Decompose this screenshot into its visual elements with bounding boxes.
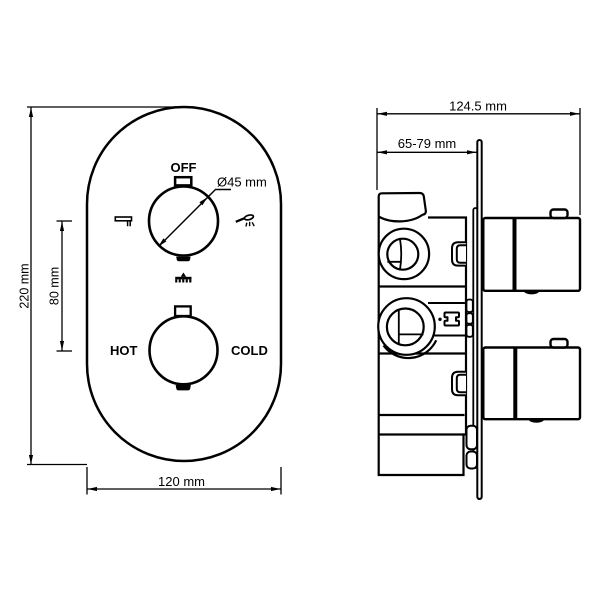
svg-text:Ø45 mm: Ø45 mm [217, 175, 267, 190]
svg-text:124.5 mm: 124.5 mm [449, 99, 507, 114]
svg-text:OFF: OFF [171, 160, 197, 175]
svg-text:120 mm: 120 mm [158, 474, 205, 489]
svg-text:HOT: HOT [110, 343, 138, 358]
svg-text:COLD: COLD [231, 343, 268, 358]
svg-text:220 mm: 220 mm [18, 263, 32, 308]
svg-text:80 mm: 80 mm [48, 267, 62, 305]
svg-text:65-79 mm: 65-79 mm [398, 136, 457, 151]
